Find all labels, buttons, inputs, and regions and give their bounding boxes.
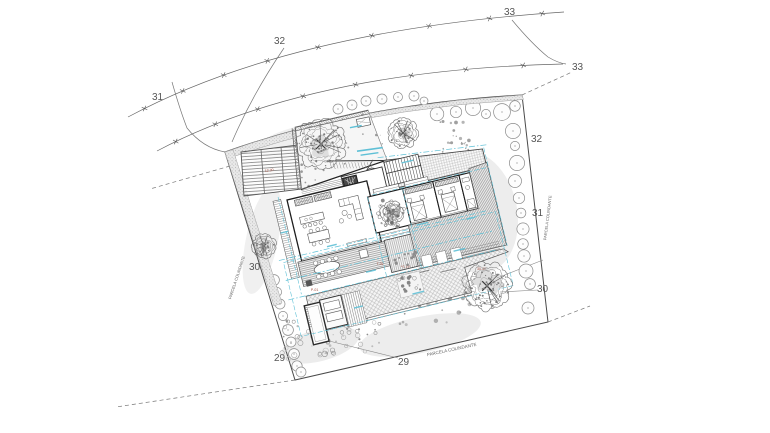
svg-text:32: 32: [274, 36, 286, 47]
svg-text:31: 31: [152, 92, 164, 103]
svg-text:P-01: P-01: [311, 288, 318, 292]
svg-text:32: 32: [531, 134, 543, 145]
svg-text:31: 31: [532, 208, 544, 219]
svg-text:30: 30: [537, 284, 549, 295]
svg-text:30: 30: [249, 262, 261, 273]
svg-text:29: 29: [398, 357, 410, 368]
svg-text:T-02: T-02: [377, 262, 384, 266]
svg-text:33: 33: [572, 62, 584, 73]
